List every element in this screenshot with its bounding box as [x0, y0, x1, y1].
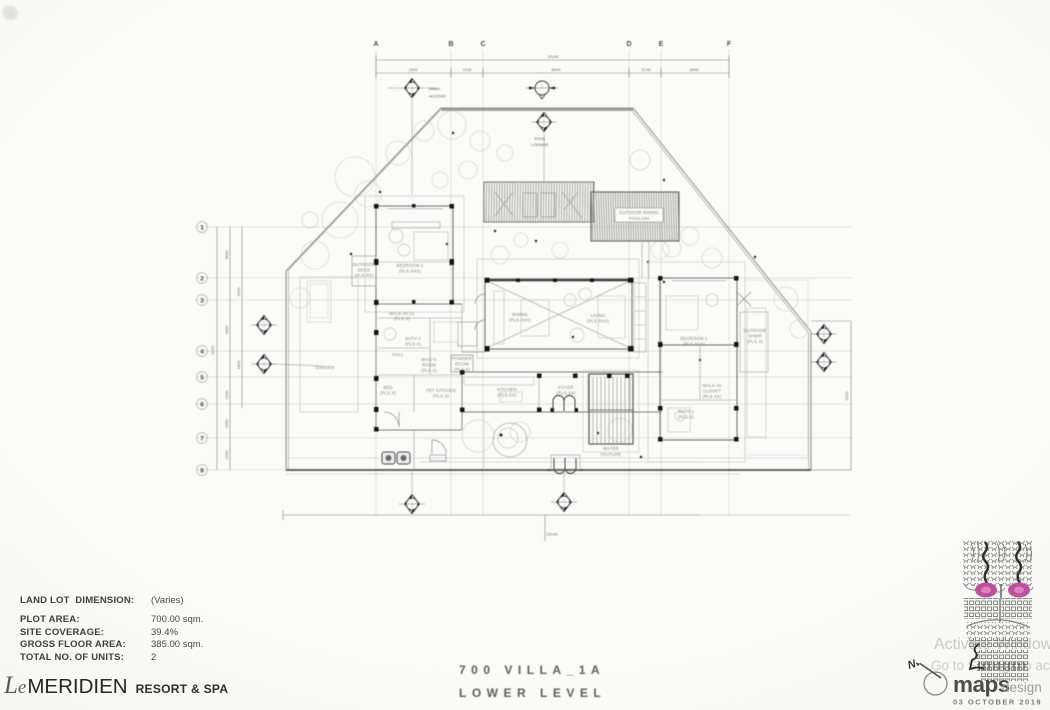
- svg-text:D: D: [626, 41, 631, 48]
- svg-text:3: 3: [200, 298, 204, 305]
- svg-text:BEDROOM 1: BEDROOM 1: [681, 336, 708, 341]
- svg-text:(PLS.X): (PLS.X): [421, 368, 437, 373]
- svg-text:B: B: [448, 41, 453, 48]
- svg-text:MAID'S: MAID'S: [421, 357, 436, 362]
- svg-text:(PLS.XX): (PLS.XX): [497, 393, 516, 398]
- svg-text:6: 6: [200, 402, 204, 409]
- svg-text:HALL: HALL: [392, 352, 404, 357]
- svg-text:2250: 2250: [224, 450, 229, 460]
- svg-text:4845: 4845: [690, 67, 700, 72]
- svg-text:(PLS.XXX): (PLS.XXX): [399, 269, 421, 274]
- svg-text:C: C: [480, 41, 485, 48]
- svg-text:F: F: [727, 41, 732, 48]
- svg-text:DECK: DECK: [358, 268, 370, 273]
- svg-text:FEATURE: FEATURE: [601, 452, 622, 457]
- svg-text:N: N: [906, 658, 918, 672]
- svg-text:design: design: [1002, 680, 1042, 695]
- svg-text:(PLS.XXX): (PLS.XXX): [683, 342, 705, 347]
- svg-text:3600: 3600: [224, 250, 229, 260]
- svg-text:(PLS.XXX): (PLS.XXX): [509, 318, 531, 323]
- svg-text:(PLS.X): (PLS.X): [405, 342, 421, 347]
- svg-text:POOL: POOL: [534, 136, 546, 141]
- svg-text:OUTDOOR DINING: OUTDOOR DINING: [619, 210, 659, 215]
- svg-text:(PLS.X): (PLS.X): [380, 391, 396, 396]
- svg-text:KITCHEN: KITCHEN: [497, 387, 517, 392]
- svg-text:(PLS.X): (PLS.X): [433, 394, 449, 399]
- svg-text:2145: 2145: [642, 67, 652, 72]
- svg-text:ROOM: ROOM: [422, 363, 436, 368]
- svg-text:A: A: [373, 41, 378, 48]
- svg-text:(PLS.XX): (PLS.XX): [556, 391, 575, 396]
- svg-text:BED: BED: [383, 385, 392, 390]
- svg-text:CLOSET: CLOSET: [703, 389, 721, 394]
- svg-text:ACCESS: ACCESS: [429, 94, 446, 99]
- svg-text:8: 8: [200, 468, 204, 475]
- svg-text:1500: 1500: [236, 287, 241, 297]
- svg-text:LIVING: LIVING: [591, 313, 606, 318]
- svg-text:1800: 1800: [236, 360, 241, 370]
- svg-text:2145: 2145: [463, 67, 473, 72]
- svg-text:9150: 9150: [844, 391, 849, 401]
- svg-text:WATER: WATER: [603, 446, 619, 451]
- svg-text:beach: beach: [429, 86, 440, 91]
- svg-text:LOUNGE: LOUNGE: [532, 142, 549, 147]
- svg-text:23140: 23140: [546, 532, 558, 537]
- svg-text:DINING: DINING: [512, 312, 528, 317]
- svg-text:SHWR: SHWR: [748, 334, 762, 339]
- svg-text:1950: 1950: [224, 419, 229, 429]
- svg-text:(PLS.X): (PLS.X): [747, 339, 763, 344]
- svg-text:(PLS.X): (PLS.X): [678, 415, 694, 420]
- svg-text:POWDER: POWDER: [452, 356, 472, 361]
- svg-text:BATH 1: BATH 1: [678, 409, 694, 414]
- svg-text:(PLS.XXX): (PLS.XXX): [587, 319, 609, 324]
- svg-text:2: 2: [200, 276, 204, 283]
- svg-text:FOYER: FOYER: [558, 385, 573, 390]
- svg-text:(PLS.XX): (PLS.XX): [354, 273, 373, 278]
- svg-text:(PLS.X): (PLS.X): [394, 316, 410, 321]
- svg-text:1500: 1500: [409, 67, 419, 72]
- svg-text:OUTDOOR: OUTDOOR: [744, 328, 767, 333]
- svg-text:4: 4: [200, 349, 204, 356]
- svg-text:9150: 9150: [210, 345, 215, 355]
- svg-text:(PLS.XX): (PLS.XX): [702, 394, 721, 399]
- svg-text:E: E: [659, 41, 664, 48]
- svg-text:OUTDOOR: OUTDOOR: [353, 262, 376, 267]
- svg-text:BATH 2: BATH 2: [405, 336, 421, 341]
- svg-text:(PLS.X): (PLS.X): [454, 367, 470, 372]
- svg-text:5: 5: [200, 375, 204, 382]
- svg-text:WALK-IN: WALK-IN: [703, 383, 722, 388]
- svg-text:BEDROOM 2: BEDROOM 2: [397, 263, 424, 268]
- svg-text:7: 7: [200, 436, 204, 443]
- svg-text:2100: 2100: [224, 390, 229, 400]
- svg-text:8640: 8640: [552, 67, 562, 72]
- svg-text:23140: 23140: [547, 54, 559, 59]
- svg-text:PAVILION: PAVILION: [629, 216, 649, 221]
- svg-text:03 OCTOBER 2019: 03 OCTOBER 2019: [953, 698, 1042, 707]
- svg-text:3300: 3300: [224, 325, 229, 335]
- svg-text:ROOM: ROOM: [455, 362, 469, 367]
- svg-text:PET KITCHEN: PET KITCHEN: [426, 388, 456, 393]
- svg-text:1: 1: [200, 225, 204, 232]
